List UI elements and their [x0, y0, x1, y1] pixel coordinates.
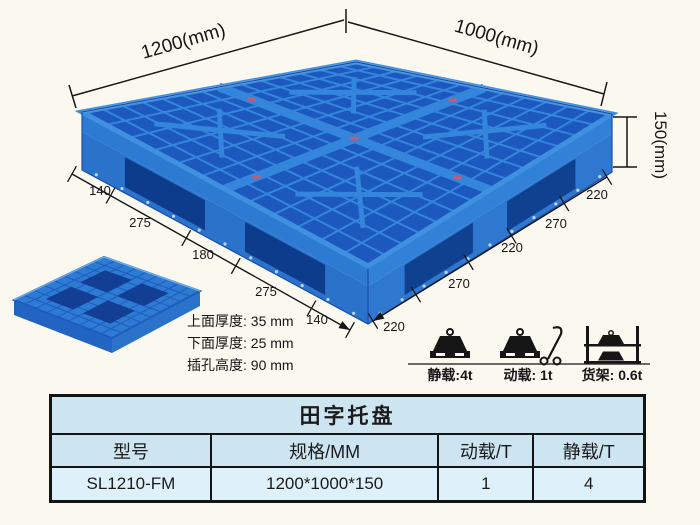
rack-load-label: 货架: 0.6t: [581, 367, 643, 383]
cell-static-load: 4: [533, 467, 644, 502]
col-header-size: 规格/MM: [211, 434, 439, 467]
spec-table-title-row: 田字托盘: [51, 396, 645, 435]
cell-dynamic-load: 1: [438, 467, 533, 502]
chain-label-left-4: 140: [306, 312, 328, 327]
small-pallet-illustration: [14, 257, 200, 353]
rack-load-icon: [584, 326, 641, 364]
chain-label-left-2: 180: [192, 247, 214, 262]
chain-label-right-0: 220: [383, 319, 405, 334]
col-header-static-load: 静载/T: [533, 434, 644, 467]
static-load-label: 静载:4t: [427, 367, 472, 383]
spec-line-bottom-thickness: 下面厚度: 25 mm: [187, 335, 294, 351]
col-header-model: 型号: [51, 434, 211, 467]
dynamic-load-handtruck-icon: [500, 327, 561, 364]
chain-label-right-4: 220: [586, 187, 608, 202]
chain-label-right-1: 270: [448, 276, 470, 291]
dim-label-1200: 1200(mm): [139, 20, 228, 64]
spec-table-header-row: 型号 规格/MM 动载/T 静载/T: [51, 434, 645, 467]
spec-line-socket-height: 插孔高度: 90 mm: [187, 357, 294, 373]
spec-table: 田字托盘 型号 规格/MM 动载/T 静载/T SL1210-FM 1200*1…: [49, 394, 646, 503]
chain-label-right-3: 270: [545, 216, 567, 231]
spec-table-title: 田字托盘: [51, 396, 645, 435]
chain-label-left-0: 140: [89, 183, 111, 198]
cell-model: SL1210-FM: [51, 467, 211, 502]
chain-label-left-3: 275: [255, 284, 277, 299]
dim-label-1000: 1000(mm): [452, 16, 541, 60]
cell-size: 1200*1000*150: [211, 467, 439, 502]
load-capacity-icons: 静载:4t 动载: 1t 货架: 0.6t: [408, 326, 650, 383]
pallet-spec-sheet: 1200(mm) 1000(mm) 150(mm) 140 275 180 27…: [0, 0, 700, 525]
chain-label-left-1: 275: [129, 215, 151, 230]
dim-tick: [69, 85, 76, 108]
spec-line-top-thickness: 上面厚度: 35 mm: [187, 313, 294, 329]
spec-table-data-row: SL1210-FM 1200*1000*150 1 4: [51, 467, 645, 502]
static-load-weight-icon: [430, 329, 470, 358]
dynamic-load-label: 动载: 1t: [504, 367, 553, 383]
thickness-specs: 上面厚度: 35 mm 下面厚度: 25 mm 插孔高度: 90 mm: [187, 313, 294, 373]
dim-label-150: 150(mm): [651, 111, 670, 179]
col-header-dynamic-load: 动载/T: [438, 434, 533, 467]
chain-label-right-2: 220: [501, 240, 523, 255]
